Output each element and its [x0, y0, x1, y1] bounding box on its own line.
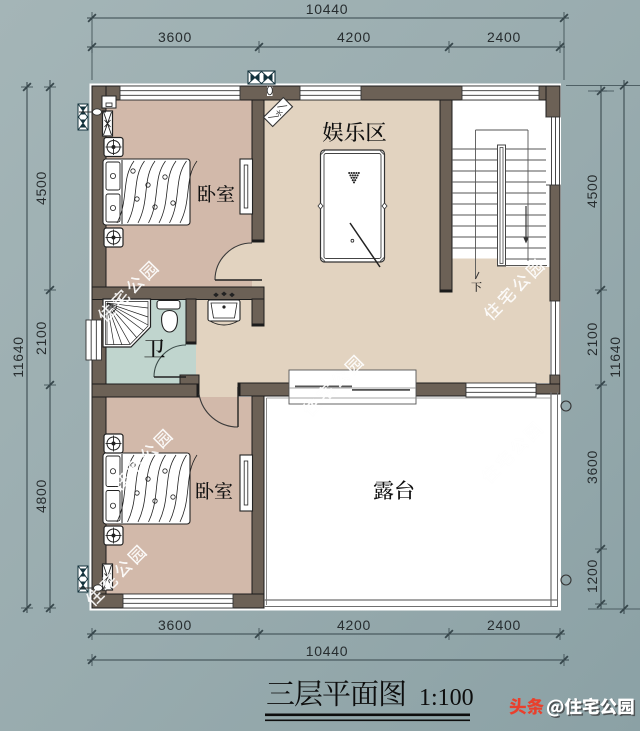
svg-text:4500: 4500: [584, 174, 600, 208]
svg-text:3600: 3600: [158, 29, 192, 45]
svg-text:1200: 1200: [584, 559, 600, 593]
svg-text:1:100: 1:100: [419, 685, 474, 711]
svg-text:10440: 10440: [306, 643, 348, 659]
svg-text:11640: 11640: [10, 336, 26, 377]
svg-text:4500: 4500: [33, 171, 49, 205]
svg-text:2100: 2100: [33, 321, 49, 355]
svg-text:4200: 4200: [337, 617, 371, 633]
svg-text:2400: 2400: [487, 29, 521, 45]
svg-text:2400: 2400: [487, 617, 521, 633]
svg-text:3600: 3600: [158, 617, 192, 633]
svg-text:3600: 3600: [584, 450, 600, 484]
svg-text:4800: 4800: [33, 479, 49, 513]
svg-text:10440: 10440: [306, 1, 348, 17]
svg-text:11640: 11640: [607, 336, 623, 377]
svg-text:2100: 2100: [584, 322, 600, 356]
svg-text:4200: 4200: [337, 29, 371, 45]
